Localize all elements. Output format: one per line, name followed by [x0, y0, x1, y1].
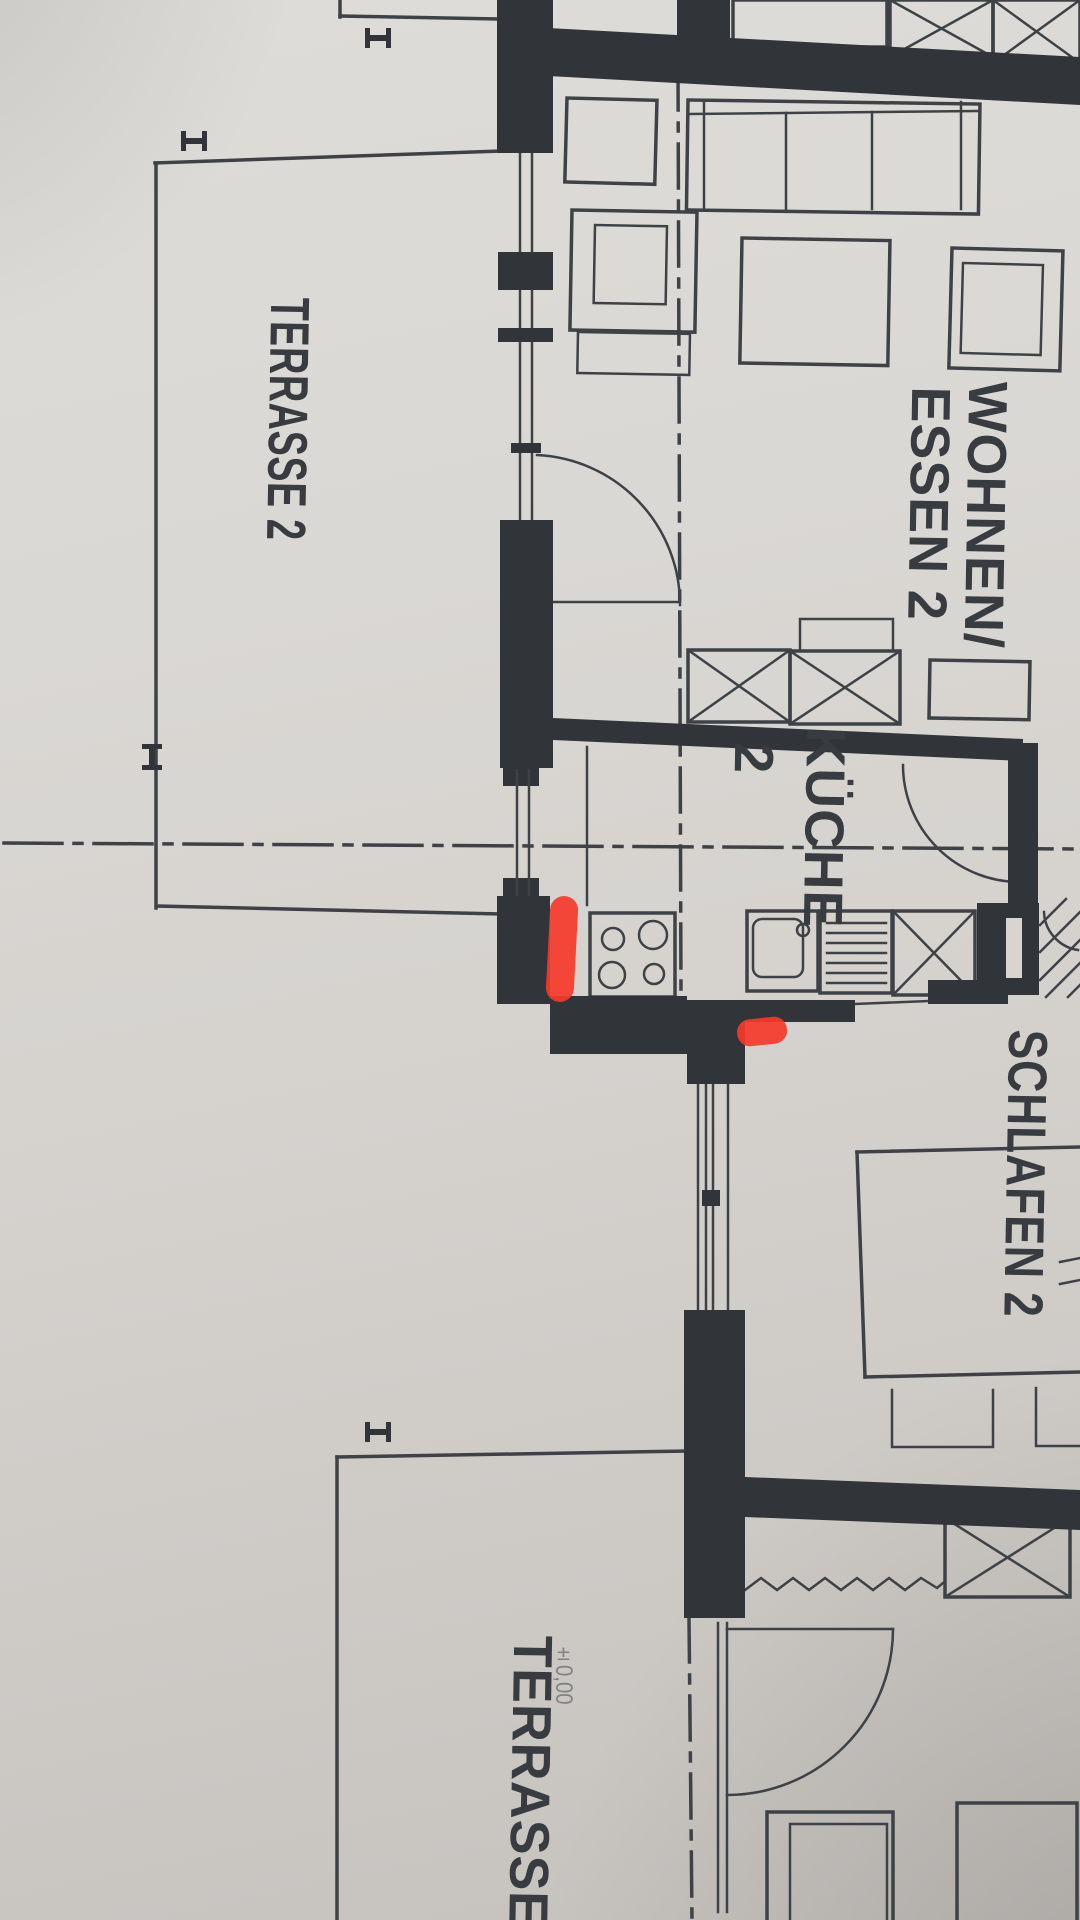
lower-wardrobe-x: [945, 1518, 1070, 1597]
cupboard-x-left: [688, 650, 790, 722]
axis-line-horizontal: [4, 843, 1080, 849]
burner: [644, 964, 664, 984]
living-room-door: [537, 455, 680, 605]
kitchen-living-wall: [553, 718, 1023, 761]
west-wall-pier-small: [498, 328, 553, 342]
upper-neighbour-terrace-outline: [340, 0, 497, 19]
kitchen-west-window: [503, 764, 539, 900]
lower-lounge-chair: [767, 1812, 893, 1920]
west-wall-corner: [497, 896, 550, 1004]
north-wall-stub: [677, 0, 730, 50]
level-annotation: ±0,00: [549, 1642, 577, 1705]
floor-plan-drawing: [0, 0, 1080, 1920]
side-chair: [565, 98, 657, 184]
lower-lounger: [957, 1803, 1077, 1920]
north-wall: [548, 28, 1080, 105]
entry-wall-stub: [1008, 743, 1038, 903]
sofa-backrest-line: [690, 111, 978, 114]
axis-line-vertical-lower: [689, 1618, 692, 1920]
lower-terrace-door: [718, 1623, 893, 1912]
room-label-essen: ESSEN 2: [895, 386, 963, 621]
joint-marker-icon: [365, 28, 391, 48]
lower-door-swing-arc: [727, 1629, 893, 1795]
sideboard: [929, 660, 1030, 720]
bedside-table-left: [892, 1390, 993, 1447]
kitchen-south-wall-east: [928, 980, 1008, 1004]
burner: [602, 928, 624, 950]
sofa: [686, 100, 980, 214]
west-wall-top: [497, 0, 553, 153]
joint-marker-icon: [365, 1422, 391, 1442]
axis-line-vertical-upper: [678, 66, 681, 998]
joint-marker-icon: [181, 131, 207, 151]
stove: [590, 913, 675, 997]
armchair: [949, 248, 1063, 371]
joint-marker-icon: [142, 744, 162, 770]
floor-plan-photo: WOHNEN/ ESSEN 2 KÜCHE 2 TERRASSE 2 SCHLA…: [0, 0, 1080, 1920]
shower-hatch: [1040, 899, 1080, 997]
burner: [639, 921, 667, 949]
room-label-schlafen: SCHLAFEN 2: [991, 1029, 1060, 1318]
red-marker-vertical: [545, 895, 579, 1002]
living-room-door-swing-arc: [537, 455, 680, 605]
west-wall-pier: [498, 252, 553, 290]
bedroom-east-window-ticks: [1060, 1258, 1080, 1284]
entry-door-slot: [1006, 918, 1022, 978]
break-line-zigzag: [745, 1578, 943, 1590]
kitchen-south-opening-line: [855, 1001, 928, 1004]
bedside-table-right: [1036, 1388, 1080, 1446]
kitchen-door-swing-arc: [903, 765, 1020, 882]
room-label-terrasse-upper: TERRASSE 2: [254, 297, 322, 541]
room-label-kueche: KÜCHE: [790, 727, 857, 929]
cupboard-x-right: [790, 619, 900, 724]
bedroom-south-wall: [745, 1477, 1080, 1530]
terrasse-2-outline: [155, 151, 500, 914]
burner: [599, 962, 625, 988]
room-label-kueche-number: 2: [721, 742, 785, 775]
window-mullion: [702, 1190, 720, 1206]
bedroom-west-wall-upper: [687, 1020, 745, 1084]
coffee-table: [740, 238, 890, 366]
bedroom-west-window: [698, 1082, 728, 1313]
kitchen-south-corner: [550, 996, 687, 1054]
west-wall-mid: [500, 520, 553, 768]
bedroom-west-wall-lower: [684, 1310, 745, 1618]
